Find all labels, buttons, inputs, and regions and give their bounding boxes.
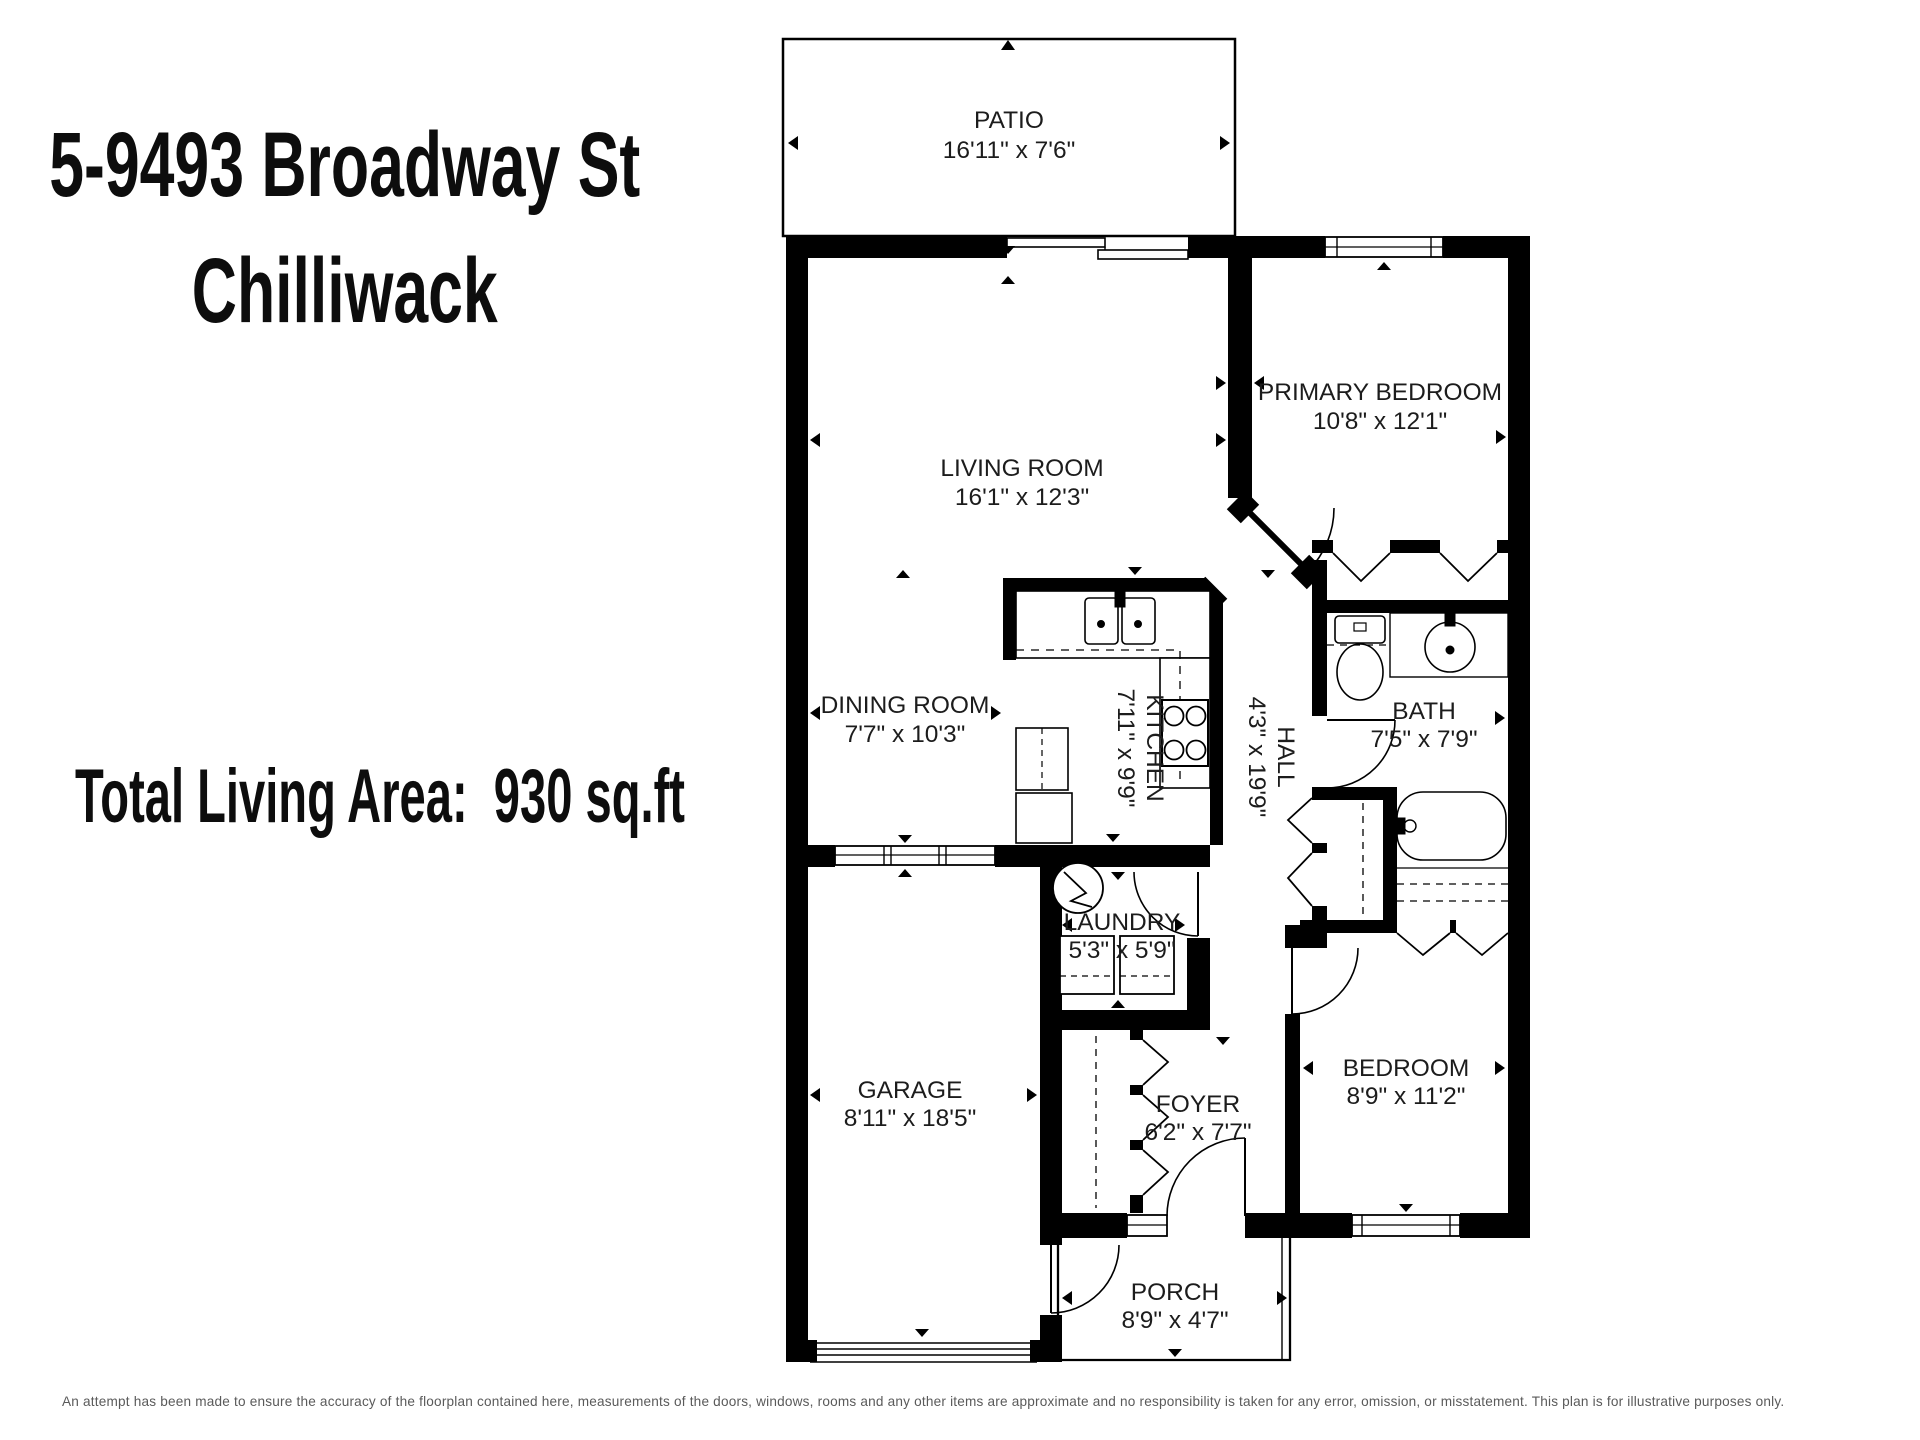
door-bedroom	[1292, 948, 1358, 1014]
door-front	[1167, 1138, 1245, 1216]
window-bedroom	[1352, 1215, 1460, 1236]
toilet-icon	[1335, 616, 1385, 700]
bifold-bedroom-closet	[1397, 933, 1450, 955]
window-dining	[835, 846, 995, 865]
bifold-hall-closet	[1288, 853, 1312, 906]
room-label-living-room: LIVING ROOM	[940, 455, 1103, 482]
address-line-2: Chilliwack	[192, 239, 498, 342]
title-block: 5-9493 Broadway St Chilliwack Total Livi…	[49, 113, 685, 839]
room-label-dining-room: DINING ROOM	[821, 692, 990, 719]
room-dims-bedroom: 8'9" x 11'2"	[1347, 1083, 1466, 1110]
room-label-hall: HALL	[1272, 726, 1299, 787]
room-dims-dining-room: 7'7" x 10'3"	[845, 721, 966, 748]
bathtub-icon	[1397, 792, 1506, 860]
room-dims-laundry: 5'3" x 5'9"	[1068, 937, 1175, 964]
room-dims-hall: 4'3" x 19'9"	[1243, 697, 1270, 818]
bifold-foyer-closet	[1143, 1150, 1168, 1195]
room-label-laundry: LAUNDRY	[1064, 909, 1181, 936]
bifold-bedroom-closet	[1456, 933, 1508, 955]
window-foyer-sidelight	[1127, 1215, 1167, 1236]
total-living-area: Total Living Area: 930 sq.ft	[75, 755, 685, 839]
room-dims-garage: 8'11" x 18'5"	[844, 1105, 977, 1132]
room-dims-bath: 7'5" x 7'9"	[1370, 726, 1477, 753]
floorplan-svg: 5-9493 Broadway St Chilliwack Total Livi…	[0, 0, 1920, 1440]
door-garage-to-porch	[1051, 1245, 1119, 1313]
bifold-primary-closet	[1440, 553, 1497, 581]
room-label-patio: PATIO	[974, 107, 1044, 134]
sliding-door	[1007, 238, 1188, 259]
room-label-porch: PORCH	[1131, 1279, 1219, 1306]
room-dims-primary-bedroom: 10'8" x 12'1"	[1313, 408, 1447, 435]
floorplan-page: { "header": { "address_line1": "5-9493 B…	[0, 0, 1920, 1440]
room-label-primary-bedroom: PRIMARY BEDROOM	[1258, 379, 1502, 406]
room-label-foyer: FOYER	[1156, 1091, 1240, 1118]
bifold-hall-closet	[1288, 798, 1312, 843]
garage-door	[810, 1343, 1037, 1362]
room-label-kitchen: KITCHEN	[1141, 694, 1168, 802]
disclaimer-text: An attempt has been made to ensure the a…	[62, 1394, 1872, 1409]
room-label-bath: BATH	[1392, 698, 1456, 725]
room-dims-patio: 16'11" x 7'6"	[943, 137, 1076, 164]
room-label-garage: GARAGE	[858, 1077, 963, 1104]
window-primary-bedroom	[1325, 237, 1443, 257]
room-dims-kitchen: 7'11" x 9'9"	[1112, 689, 1139, 808]
room-labels: PATIO 16'11" x 7'6" LIVING ROOM 16'1" x …	[821, 107, 1502, 1334]
water-heater-icon	[1053, 863, 1103, 913]
bifold-foyer-closet	[1143, 1040, 1168, 1085]
room-label-bedroom: BEDROOM	[1343, 1055, 1470, 1082]
pantry-icon	[1016, 728, 1068, 790]
bifold-primary-closet	[1333, 553, 1390, 581]
room-dims-foyer: 6'2" x 7'7"	[1144, 1119, 1251, 1146]
room-dims-porch: 8'9" x 4'7"	[1121, 1307, 1228, 1334]
room-dims-living-room: 16'1" x 12'3"	[955, 484, 1089, 511]
address-line-1: 5-9493 Broadway St	[49, 113, 640, 216]
fridge-icon	[1016, 793, 1072, 843]
